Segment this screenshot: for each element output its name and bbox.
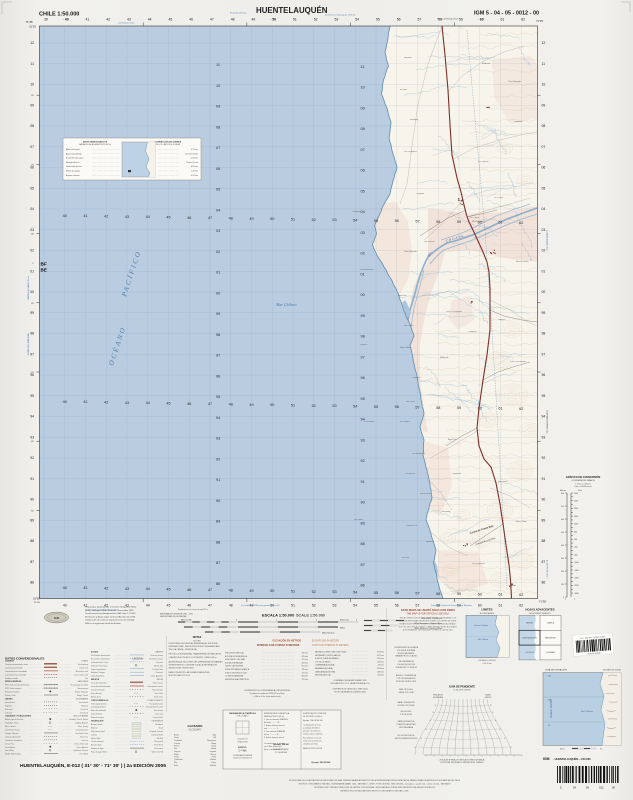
svg-text:07: 07 [361, 148, 365, 152]
svg-text:49: 49 [252, 18, 256, 22]
svg-text:PARA UN PUNTO (100 m): PARA UN PUNTO (100 m) [264, 715, 284, 718]
svg-text:91: 91 [216, 478, 220, 482]
svg-text:47: 47 [208, 604, 212, 608]
svg-text:GRID REFERENCE: GRID REFERENCE [273, 749, 289, 751]
svg-text:Mar Chileno: Mar Chileno [275, 302, 297, 307]
svg-text:LÍMITES: LÍMITES [5, 698, 13, 701]
svg-text:Provincial: Provincial [5, 708, 13, 711]
svg-text:45: 45 [166, 587, 170, 591]
svg-text:45: 45 [166, 401, 170, 405]
svg-text:97: 97 [542, 352, 546, 356]
svg-text:BUILT-UP AREAS: BUILT-UP AREAS [74, 715, 89, 718]
svg-text:Sand, Dune: Sand, Dune [154, 696, 163, 698]
svg-text:Intermediate contour: Intermediate contour [148, 685, 164, 688]
svg-text:AUTORIZADA SU CIRCULACIÓN POR: AUTORIZADA SU CIRCULACIÓN POR RES. N° 24… [403, 629, 454, 632]
svg-text:Escala de referencia: Escala de referencia [230, 13, 246, 15]
svg-text:94: 94 [542, 415, 546, 419]
svg-text:60: 60 [480, 18, 484, 22]
svg-text:55: 55 [374, 405, 378, 409]
svg-text:Oleoducto, Gasoducto: Oleoducto, Gasoducto [5, 739, 22, 742]
svg-text:2°45' DE DESVIACIÓN: 2°45' DE DESVIACIÓN [397, 677, 416, 680]
svg-text:150: 150 [548, 676, 551, 678]
svg-text:y cuadrado de 100 km: y cuadrado de 100 km [303, 726, 320, 729]
svg-text:⁴: ⁴ [270, 18, 271, 22]
svg-text:ANTECEDENTES MÁS RECIENTES SOB: ANTECEDENTES MÁS RECIENTES SOBRE LOS LÍM… [399, 620, 457, 623]
svg-text:Equidistancia de curvas de niv: Equidistancia de curvas de nivel 25 m [178, 608, 209, 611]
svg-text:Lagunillas: Lagunillas [452, 473, 461, 475]
svg-text:54: 54 [353, 218, 357, 222]
svg-text:52: 52 [314, 18, 318, 22]
svg-text:Línea de alta tensión: Línea de alta tensión [5, 735, 21, 738]
svg-text:Millas: Millas [340, 628, 345, 630]
svg-text:45: 45 [169, 18, 173, 22]
svg-text:Bosque, Monte: Bosque, Monte [91, 723, 102, 726]
svg-text:Kilómetros: Kilómetros [340, 619, 349, 622]
svg-text:Regional: Regional [81, 705, 88, 707]
svg-text:ILLAPEL (PLAZA DE ARMAS): ILLAPEL (PLAZA DE ARMAS) [315, 657, 339, 660]
svg-text:-1800: -1800 [574, 578, 579, 580]
svg-text:El Polar: El Polar [402, 557, 409, 559]
svg-text:INTERNACIONAL, DATUM PROVISORI: INTERNACIONAL, DATUM PROVISORIO SUDAMERI… [169, 645, 221, 648]
svg-text:Fence, Stone wall: Fence, Stone wall [75, 742, 89, 745]
svg-text:50: 50 [270, 589, 274, 593]
svg-text:Cerro Verde: Cerro Verde [420, 493, 432, 495]
svg-text:42: 42 [104, 214, 108, 218]
svg-text:COMPARACIÓN MAGNÉTICA AÑO 2005: COMPARACIÓN MAGNÉTICA AÑO 2005 [333, 679, 366, 682]
svg-text:48: 48 [231, 18, 235, 22]
svg-text:Zona de dunas: Zona de dunas [91, 714, 102, 716]
svg-text:A LOS VILOS 26 km: A LOS VILOS 26 km [546, 560, 549, 579]
svg-text:30: 30 [499, 729, 501, 731]
svg-text:International: International [79, 701, 89, 704]
svg-text:Cerco, Pirca: Cerco, Pirca [5, 742, 14, 745]
svg-text:46: 46 [187, 402, 191, 406]
svg-text:Faro, Baliza: Faro, Baliza [5, 749, 14, 752]
svg-text:SALAMANCA (PLAZA): SALAMANCA (PLAZA) [315, 667, 333, 670]
svg-text:98: 98 [30, 332, 34, 336]
svg-text:51: 51 [291, 589, 295, 593]
svg-text:07: 07 [542, 145, 546, 149]
svg-text:90: 90 [361, 501, 365, 505]
svg-text:FERROCARRILES: FERROCARRILES [5, 680, 22, 683]
svg-text:EN LA CONFECCIÓN DE ESTE MAPA: EN LA CONFECCIÓN DE ESTE MAPA SE HAN CON… [400, 617, 457, 620]
svg-text:WATERS: WATERS [156, 651, 164, 654]
svg-text:ESCALA 1:50.000: ESCALA 1:50.000 [262, 613, 294, 618]
svg-text:IGM 5 - 04 - 05 - 0012 - 00: IGM 5 - 04 - 05 - 0012 - 00 [474, 11, 539, 17]
svg-text:Chepica: Chepica [498, 319, 506, 321]
svg-text:12: 12 [30, 41, 34, 45]
svg-text:RAILROADS: RAILROADS [78, 680, 89, 683]
svg-text:99: 99 [542, 311, 546, 315]
svg-text:Water well, Mill: Water well, Mill [152, 751, 164, 754]
svg-text:07: 07 [30, 145, 34, 149]
svg-text:54: 54 [353, 590, 357, 594]
svg-text:SÓLO EL USO OFICIAL PUEDE COMP: SÓLO EL USO OFICIAL PUEDE COMPROMETER LA… [399, 626, 458, 629]
svg-text:05: 05 [30, 186, 34, 190]
svg-text:Curva de nivel intermedia: Curva de nivel intermedia [91, 685, 110, 688]
svg-text:WGS-84 MEDIANTE: WGS-84 MEDIANTE [398, 652, 415, 655]
svg-text:Station, Flag stop: Station, Flag stop [75, 691, 88, 694]
svg-text:La designación de zona: La designación de zona [303, 724, 321, 726]
svg-text:09: 09 [30, 104, 34, 108]
svg-text:60: 60 [478, 592, 482, 596]
svg-text:NIVEL MEDIO DEL MAR: NIVEL MEDIO DEL MAR [225, 658, 246, 661]
svg-text:Metros 1000: Metros 1000 [181, 619, 192, 622]
svg-text:SUPERIORES NO CONTIENE TODA LA: SUPERIORES NO CONTIENE TODA LA INFORMACI… [169, 663, 218, 666]
svg-text:14 metros límite: 14 metros límite [185, 152, 198, 155]
svg-text:300: 300 [561, 558, 564, 560]
svg-text:INSTITUTO GEOGRÁFICO MILITAR -: INSTITUTO GEOGRÁFICO MILITAR - NUEVA SAN… [299, 782, 451, 785]
svg-text:42: 42 [104, 586, 108, 590]
svg-text:DISTRIBUCIÓN Y VENTAS: DIRECCI: DISTRIBUCIÓN Y VENTAS: DIRECCIÓN DE LÍMI… [314, 786, 435, 789]
svg-text:-200: -200 [574, 547, 578, 549]
svg-text:Río o Estero permanente: Río o Estero permanente [91, 654, 110, 657]
svg-text:429 mts: 429 mts [302, 661, 308, 664]
svg-text:Río: Río [174, 762, 177, 764]
svg-text:PROYECCIÓN UNIVERSAL TRANSVERS: PROYECCIÓN UNIVERSAL TRANSVERSAL DE MERC… [169, 653, 222, 656]
svg-text:62: 62 [519, 407, 523, 411]
svg-text:97: 97 [216, 354, 220, 358]
svg-text:ÁNGULO / DIFERENCIA: ÁNGULO / DIFERENCIA [396, 674, 417, 677]
svg-text:10: 10 [216, 84, 220, 88]
svg-text:96: 96 [542, 373, 546, 377]
svg-text:Vertiente, Pozo, Noria: Vertiente, Pozo, Noria [91, 664, 107, 667]
svg-text:1149 mts: 1149 mts [377, 660, 384, 663]
svg-text:87: 87 [30, 560, 34, 564]
svg-text:SANTIAGO (CERRO SAN CRISTÓBAL): SANTIAGO (CERRO SAN CRISTÓBAL) [315, 651, 347, 654]
svg-text:47: 47 [208, 588, 212, 592]
svg-text:00: 00 [30, 290, 34, 294]
svg-text:62: 62 [519, 593, 523, 597]
svg-text:Su referencia vertical ajuste: Su referencia vertical ajuste 71,76 mts [325, 14, 356, 17]
svg-text:71°45': 71°45' [34, 602, 41, 604]
svg-text:2°45' AL ESTE: 2°45' AL ESTE [400, 713, 413, 716]
svg-text:Triangulation point: Triangulation point [149, 702, 163, 705]
svg-text:El Arenal: El Arenal [440, 356, 449, 359]
svg-text:El Polar: El Polar [400, 89, 407, 91]
svg-text:Cota de elevación: Cota de elevación [91, 689, 105, 692]
svg-text:48: 48 [229, 588, 233, 592]
svg-text:95: 95 [30, 394, 34, 398]
svg-text:89: 89 [361, 522, 365, 526]
svg-text:Regional: Regional [5, 705, 12, 707]
svg-text:El Espinal: El Espinal [406, 473, 415, 475]
svg-text:57: 57 [415, 219, 419, 223]
svg-text:10: 10 [510, 747, 512, 749]
svg-text:LOS VILOS: LOS VILOS [525, 652, 533, 654]
svg-text:Pozo de agua, Molino: Pozo de agua, Molino [91, 752, 107, 754]
svg-text:Los Loros: Los Loros [406, 401, 415, 403]
svg-text:Cementerio, Ruinas: Cementerio, Ruinas [5, 729, 20, 732]
svg-text:1134 mts: 1134 mts [377, 667, 384, 670]
svg-text:93: 93 [30, 435, 34, 439]
svg-text:51: 51 [291, 403, 295, 407]
svg-text:1000: 1000 [574, 524, 578, 526]
svg-text:09: 09 [216, 105, 220, 109]
svg-text:92: 92 [216, 458, 220, 462]
svg-text:GLOSSARY: GLOSSARY [188, 729, 202, 732]
svg-text:ESTA EDICIÓN NO COMPROMETE EN: ESTA EDICIÓN NO COMPROMETE EN MODO ALGUN… [399, 623, 457, 626]
svg-text:ESTACIÓN LIMÁHUIDA: ESTACIÓN LIMÁHUIDA [27, 333, 30, 355]
svg-text:Beach: Beach [211, 754, 216, 756]
svg-text:La cuadrícula UTM corresponde: La cuadrícula UTM corresponde al huso 19 [241, 605, 280, 607]
svg-text:55: 55 [374, 604, 378, 608]
svg-text:61: 61 [498, 221, 502, 225]
svg-text:Camino de tierra, transitable: Camino de tierra, transitable [5, 673, 26, 676]
svg-text:700: 700 [561, 506, 564, 508]
svg-text:53: 53 [332, 218, 336, 222]
svg-text:River: River [212, 761, 217, 764]
svg-text:54: 54 [353, 604, 357, 608]
svg-text:800: 800 [561, 493, 564, 495]
svg-text:0: 0 [565, 599, 566, 601]
svg-text:60: 60 [478, 406, 482, 410]
svg-text:Mar Chileno: Mar Chileno [478, 639, 488, 641]
svg-text:1 pie = 0.3048 metros: 1 pie = 0.3048 metros [574, 485, 592, 488]
svg-text:Torre, Antena: Torre, Antena [5, 746, 15, 749]
svg-text:40: 40 [429, 720, 431, 722]
svg-text:Pipe line: Pipe line [82, 740, 89, 742]
svg-text:98: 98 [361, 335, 365, 339]
svg-text:Laguna: Laguna [174, 751, 181, 753]
svg-text:1800: 1800 [574, 508, 578, 510]
svg-text:94: 94 [361, 418, 365, 422]
svg-text:71°45': 71°45' [26, 20, 34, 24]
svg-text:94: 94 [30, 415, 34, 419]
svg-text:88: 88 [30, 539, 34, 543]
svg-text:La Chispa: La Chispa [494, 197, 504, 199]
svg-text:99: 99 [361, 314, 365, 318]
svg-text:1180 mts: 1180 mts [377, 670, 384, 673]
svg-text:200: 200 [561, 571, 564, 573]
svg-text:Chepica: Chepica [360, 344, 368, 346]
svg-text:0,00 mts: 0,00 mts [191, 165, 198, 168]
svg-text:92: 92 [30, 456, 34, 460]
svg-text:583 mts: 583 mts [378, 674, 384, 677]
svg-text:ESCALA 1:2.500.000: ESCALA 1:2.500.000 [479, 659, 496, 662]
svg-text:99: 99 [216, 312, 220, 316]
svg-text:57: 57 [415, 405, 419, 409]
svg-text:0: 0 [574, 599, 575, 601]
svg-text:93: 93 [216, 437, 220, 441]
svg-text:600: 600 [574, 531, 577, 533]
svg-text:3. Leer números GRANDES: 3. Leer números GRANDES [264, 730, 286, 733]
svg-text:10: 10 [414, 747, 416, 749]
svg-text:07: 07 [216, 146, 220, 150]
svg-text:Las Barrancas: Las Barrancas [360, 269, 373, 271]
svg-text:47: 47 [208, 402, 212, 406]
svg-text:ELEVATION GUIDE: ELEVATION GUIDE [603, 669, 621, 672]
svg-text:31°15': 31°15' [29, 26, 36, 29]
svg-text:42: 42 [104, 400, 108, 404]
svg-text:GUÍA DE ELEVACIÓN: GUÍA DE ELEVACIÓN [545, 669, 567, 672]
svg-text:Canal, Aqueduct: Canal, Aqueduct [151, 675, 164, 678]
svg-text:Sendero o huella: Sendero o huella [5, 677, 18, 680]
svg-text:93: 93 [361, 439, 365, 443]
svg-text:VER DIAGRAMA: VER DIAGRAMA [399, 726, 414, 729]
svg-text:PARÁMETROS LOCALES: PARÁMETROS LOCALES [395, 655, 417, 658]
svg-text:Lagoon: Lagoon [210, 751, 216, 753]
svg-text:ESCARPADA: ESCARPADA [433, 696, 444, 699]
svg-text:CHILE 1:50.000: CHILE 1:50.000 [39, 12, 79, 18]
svg-text:Marca de nivelación: Marca de nivelación [91, 709, 106, 712]
svg-text:GLOSARIO: GLOSARIO [188, 724, 204, 728]
svg-text:04: 04 [361, 210, 365, 214]
svg-text:INTERIOR DEL TERRITORIO.: INTERIOR DEL TERRITORIO. [169, 668, 195, 670]
svg-text:DISPERSIÓN DE LA AGUJA 1° (ENE: DISPERSIÓN DE LA AGUJA 1° (ENE 2005) [332, 688, 367, 691]
svg-text:A CANELA BAJA 12 km: A CANELA BAJA 12 km [546, 230, 549, 251]
svg-text:Narrow gauge: Narrow gauge [77, 687, 88, 690]
svg-text:% (SLOPE GUIDE): % (SLOPE GUIDE) [453, 690, 471, 692]
svg-text:61: 61 [501, 18, 505, 22]
svg-text:MULTIPLICAR POR 3.28.: MULTIPLICAR POR 3.28. [169, 674, 191, 677]
svg-text:VEGETATION: VEGETATION [152, 720, 164, 723]
svg-text:RELIEF: RELIEF [157, 679, 164, 681]
svg-text:INFORMACIÓN VIGENTE 1961 - 198: INFORMACIÓN VIGENTE 1961 - 1981 [160, 613, 193, 616]
svg-text:Camino de tierra consolidado: Camino de tierra consolidado [5, 670, 27, 673]
svg-text:Broad gauge electrified: Broad gauge electrified [71, 684, 88, 687]
svg-text:09: 09 [542, 104, 546, 108]
svg-text:Nivel medio del mar: Nivel medio del mar [66, 166, 82, 168]
svg-text:Dune area: Dune area [155, 713, 163, 716]
svg-text:(IGM), Santiago-CHILE. Derecho: (IGM), Santiago-CHILE. Derechos Reservad… [85, 609, 134, 612]
svg-text:40: 40 [63, 586, 67, 590]
svg-text:89: 89 [216, 520, 220, 524]
svg-text:Muelle, Embarcadero: Muelle, Embarcadero [5, 753, 21, 756]
svg-text:Marea de sicigias: Marea de sicigias [66, 171, 80, 173]
svg-text:del oeste ............ 56: del oeste ............ 56 [264, 721, 279, 724]
svg-text:57: 57 [416, 604, 420, 608]
svg-text:11: 11 [542, 62, 546, 66]
svg-text:40: 40 [495, 720, 497, 722]
svg-text:ELEVATIONS IN METERS: ELEVATIONS IN METERS [312, 640, 340, 643]
svg-text:Index contour: Index contour [153, 682, 164, 685]
svg-text:-0,54 mts: -0,54 mts [191, 174, 199, 177]
svg-text:61: 61 [498, 593, 502, 597]
svg-text:FFCC trocha ancha electrificad: FFCC trocha ancha electrificado [5, 684, 29, 687]
svg-text:Pier, Wharf: Pier, Wharf [80, 753, 89, 756]
svg-text:01: 01 [216, 271, 220, 275]
svg-text:89: 89 [30, 519, 34, 523]
svg-text:1072 mts: 1072 mts [377, 654, 384, 657]
svg-text:PUNTO GEODÉSICO IGM: PUNTO GEODÉSICO IGM [225, 671, 247, 674]
svg-text:1:50.000 SHOULD BE: 1:50.000 SHOULD BE [397, 664, 416, 666]
svg-text:Nombre de lugar: Nombre de lugar [91, 747, 104, 750]
svg-text:Paved road: Paved road [79, 666, 88, 669]
svg-text:PARA OBTENER LA: PARA OBTENER LA [398, 720, 415, 723]
svg-text:01: 01 [361, 273, 365, 277]
svg-text:Provincial: Provincial [81, 708, 89, 711]
svg-text:92: 92 [542, 456, 546, 460]
svg-text:CERRO LA HIGUERA: CERRO LA HIGUERA [225, 665, 244, 668]
svg-text:53: 53 [332, 404, 336, 408]
svg-text:44: 44 [146, 215, 150, 219]
svg-text:02: 02 [361, 252, 365, 256]
svg-text:CANELA: CANELA [547, 622, 555, 625]
svg-text:400: 400 [561, 545, 564, 547]
svg-text:Pangalillo: Pangalillo [514, 121, 524, 123]
svg-text:864 mts: 864 mts [302, 675, 308, 678]
svg-text:Internacional: Internacional [5, 701, 15, 704]
svg-text:Bench mark: Bench mark [154, 709, 163, 712]
svg-text:45: 45 [166, 215, 170, 219]
svg-text:55: 55 [374, 219, 378, 223]
svg-text:Hornillos: Hornillos [426, 541, 434, 543]
svg-text:OTHER SYMBOLS: OTHER SYMBOLS [148, 700, 164, 702]
svg-text:+ + +: + + + [134, 693, 138, 695]
svg-text:96: 96 [361, 376, 365, 380]
svg-text:precede a la referencia: precede a la referencia [303, 729, 320, 732]
svg-text:10: 10 [30, 83, 34, 87]
svg-text:CAMINOS: CAMINOS [5, 660, 15, 663]
svg-text:222 mts: 222 mts [302, 678, 308, 681]
svg-text:menor usar la referencia: menor usar la referencia [303, 740, 321, 743]
svg-text:Las Salinas: Las Salinas [478, 161, 488, 163]
svg-text:40: 40 [63, 214, 67, 218]
svg-text:Levantamiento aerofotogramétri: Levantamiento aerofotogramétrico SAF, fo… [85, 612, 136, 615]
svg-text:DE UN PUNTO (1.000 m): DE UN PUNTO (1.000 m) [303, 716, 323, 718]
svg-text:2200: 2200 [574, 501, 578, 503]
svg-text:96: 96 [216, 375, 220, 379]
svg-text:1:50.000 AL SISTEMA: 1:50.000 AL SISTEMA [397, 649, 416, 652]
svg-text:SAMPLE POINT: 19H UE: SAMPLE POINT: 19H UE [303, 747, 323, 750]
svg-text:DATUM PSAD-56 (LA CANOA): DATUM PSAD-56 (LA CANOA) [160, 615, 187, 618]
svg-text:COMBARBALÁ (PLAZA): COMBARBALÁ (PLAZA) [315, 664, 335, 667]
svg-text:86: 86 [30, 581, 34, 585]
svg-text:-2200: -2200 [574, 585, 579, 587]
svg-text:-600: -600 [574, 554, 578, 556]
svg-text:ROADS: ROADS [82, 660, 89, 663]
svg-text:RELIEVE: RELIEVE [91, 679, 100, 681]
svg-text:Viña, Huerto frutal: Viña, Huerto frutal [91, 730, 105, 733]
svg-text:2. Estimar décimas hacia el: 2. Estimar décimas hacia el [264, 724, 285, 727]
svg-text:Laguna permanente: Laguna permanente [91, 668, 106, 671]
svg-text:46: 46 [187, 588, 191, 592]
svg-text:Cemetery, Ruins: Cemetery, Ruins [76, 729, 89, 732]
svg-text:20: 20 [420, 738, 422, 740]
svg-text:THE MAP IS FOR OFFICIAL USE ON: THE MAP IS FOR OFFICIAL USE ONLY [406, 613, 450, 616]
svg-text:Arenal, Duna: Arenal, Duna [91, 695, 101, 698]
svg-text:NO SE DISPONE DE: NO SE DISPONE DE [397, 735, 415, 737]
svg-text:45: 45 [167, 604, 171, 608]
svg-text:Lighthouse, Beacon: Lighthouse, Beacon [73, 749, 88, 752]
svg-text:Ejemplo: 566 966: Ejemplo: 566 966 [273, 744, 288, 746]
svg-text:Matorral: Matorral [91, 726, 98, 729]
svg-text:Cerro: Cerro [174, 736, 179, 739]
svg-text:SERIE J721 / IGM: SERIE J721 / IGM [399, 692, 414, 694]
svg-text:02: 02 [216, 250, 220, 254]
svg-text:IGM es el organismo oficial de: IGM es el organismo oficial del Estado. [85, 622, 121, 625]
svg-text:Mundilog: Mundilog [410, 119, 418, 121]
svg-text:00: 00 [361, 293, 365, 297]
svg-text:Cordillera: Cordillera [174, 739, 183, 742]
svg-text:Bay: Bay [213, 735, 216, 737]
svg-text:59: 59 [457, 592, 461, 596]
svg-text:Curva de nivel índice: Curva de nivel índice [91, 682, 107, 685]
svg-text:Salt field: Salt field [157, 737, 164, 740]
svg-text:1754 mts: 1754 mts [377, 657, 384, 660]
svg-text:Cultivated fields: Cultivated fields [151, 733, 163, 736]
svg-text:CONTOUR INTERVAL 50 METERS: CONTOUR INTERVAL 50 METERS [312, 644, 349, 647]
svg-text:58: 58 [436, 406, 440, 410]
svg-text:169 mts: 169 mts [302, 652, 308, 655]
svg-text:56: 56 [395, 591, 399, 595]
svg-text:Mountains: Mountains [207, 739, 216, 742]
svg-text:43: 43 [125, 401, 129, 405]
svg-text:47: 47 [210, 18, 214, 22]
svg-text:48: 48 [229, 216, 233, 220]
svg-text:40: 40 [65, 18, 69, 22]
